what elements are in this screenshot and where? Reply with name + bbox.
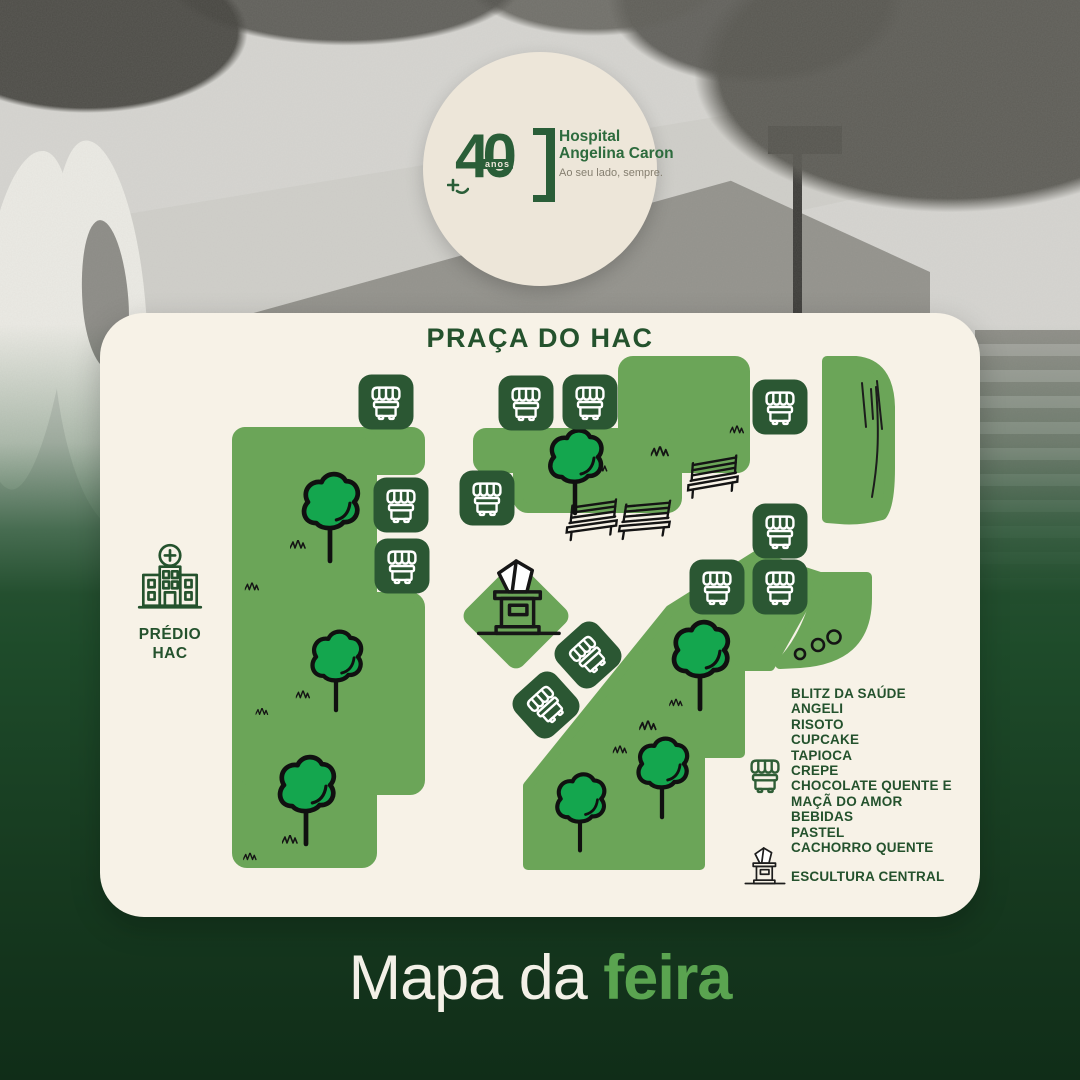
hospital-building-icon <box>131 542 209 614</box>
hospital-tagline: Ao seu lado, sempre. <box>559 167 679 179</box>
legend: BLITZ DA SAÚDEANGELIRISOTOCUPCAKETAPIOCA… <box>742 686 972 855</box>
hac-hands-icon <box>447 178 469 196</box>
logo-bracket-shape <box>533 128 555 202</box>
legend-item: BEBIDAS <box>791 809 972 824</box>
poster-title-highlight: feira <box>603 943 731 1013</box>
legend-item: PASTEL <box>791 825 972 840</box>
legend-item: CHOCOLATE QUENTE E MAÇÃ DO AMOR <box>791 778 972 809</box>
legend-item: TAPIOCA <box>791 748 972 763</box>
legend-item: BLITZ DA SAÚDE <box>791 686 972 701</box>
legend-sculpture-label: ESCULTURA CENTRAL <box>791 869 944 884</box>
logo-anos-label: anos <box>482 159 513 169</box>
map-title: PRAÇA DO HAC <box>100 323 980 354</box>
legend-item: CREPE <box>791 763 972 778</box>
legend-item: CACHORRO QUENTE <box>791 840 972 855</box>
sculpture-icon <box>744 846 786 896</box>
poster: PRAÇA DO HAC <box>0 0 1080 1080</box>
logo-40-anos: 40 anos <box>455 126 551 212</box>
legend-item: CUPCAKE <box>791 732 972 747</box>
predio-hac-label: PRÉDIO HAC <box>115 625 225 663</box>
hospital-name: Hospital Angelina Caron <box>559 128 679 162</box>
food-stall-icon <box>742 752 788 798</box>
badge-text-block: Hospital Angelina Caron Ao seu lado, sem… <box>559 128 679 179</box>
legend-item-list: BLITZ DA SAÚDEANGELIRISOTOCUPCAKETAPIOCA… <box>791 686 972 855</box>
poster-title-prefix: Mapa da <box>349 943 604 1013</box>
legend-item: ANGELI <box>791 701 972 716</box>
poster-title: Mapa da feira <box>0 942 1080 1014</box>
anniversary-badge: 40 anos Hospital Angelina Caron Ao seu l… <box>423 52 657 286</box>
predio-hac-label-block: PRÉDIO HAC <box>115 542 225 663</box>
legend-item: RISOTO <box>791 717 972 732</box>
